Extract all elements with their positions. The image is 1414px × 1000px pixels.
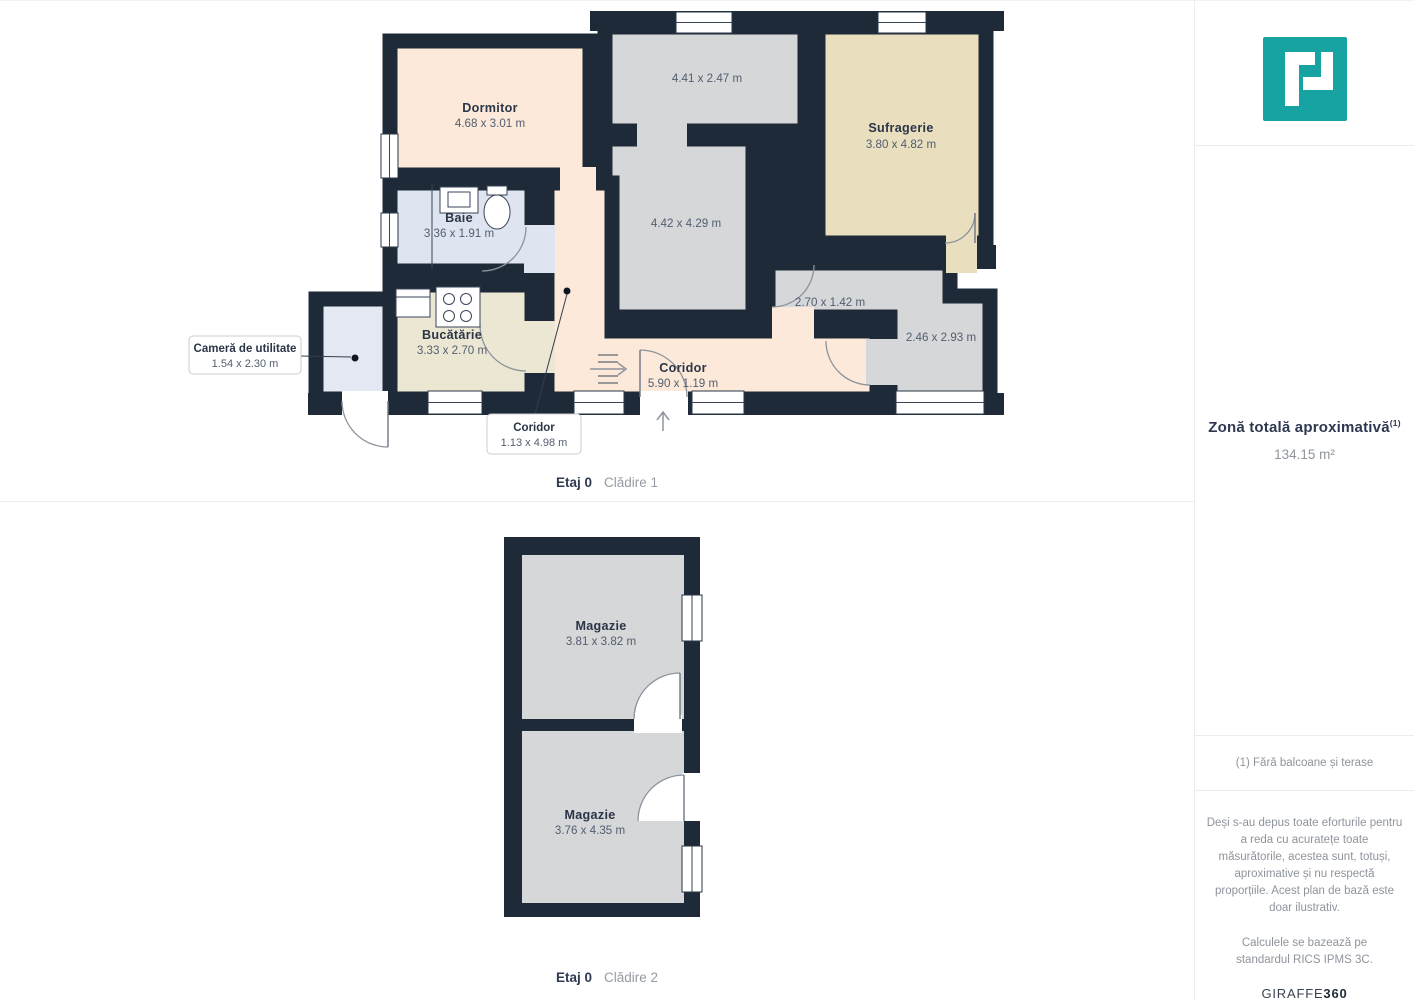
room-label: Magazie bbox=[564, 808, 615, 822]
opening-dormitor-coridor bbox=[560, 167, 596, 193]
room-sufragerie bbox=[818, 27, 986, 243]
room-dims: 4.68 x 3.01 m bbox=[455, 117, 525, 130]
callout-label: Coridor bbox=[513, 422, 555, 434]
plan1-building-caption: Clădire 1 bbox=[604, 475, 658, 490]
opening-entrance bbox=[640, 391, 688, 415]
info-sidebar: Zonă totală aproximativă(1) 134.15 m² (1… bbox=[1194, 1, 1414, 1000]
total-area-value: 134.15 m² bbox=[1274, 447, 1335, 462]
callout-label: Cameră de utilitate bbox=[194, 343, 297, 355]
room-dims: 3.36 x 1.91 m bbox=[424, 227, 494, 240]
footnote-text: (1) Fără balcoane și terase bbox=[1236, 757, 1373, 769]
room-label: Coridor bbox=[659, 361, 707, 375]
room-dims: 2.70 x 1.42 m bbox=[795, 296, 865, 309]
opening-bucatarie-door bbox=[524, 321, 555, 373]
opening-baie-door bbox=[524, 225, 555, 273]
callout-dims: 1.13 x 4.98 m bbox=[501, 437, 568, 449]
total-area-section: Zonă totală aproximativă(1) 134.15 m² bbox=[1195, 146, 1414, 736]
room-dims: 3.33 x 2.70 m bbox=[417, 344, 487, 357]
brand-suffix: 360 bbox=[1323, 986, 1347, 1000]
room-label: Bucătărie bbox=[422, 328, 482, 342]
window bbox=[381, 213, 398, 247]
standard-note: Calculele se bazează pe standardul RICS … bbox=[1215, 935, 1395, 969]
total-area-label: Zonă totală aproximativă bbox=[1208, 419, 1390, 436]
plan1-floor-caption: Etaj 0 bbox=[556, 475, 592, 490]
window bbox=[682, 595, 702, 641]
callout-dims: 1.54 x 2.30 m bbox=[212, 358, 279, 370]
opening-utility-door bbox=[342, 391, 388, 415]
legal-section: Deși s-au depus toate eforturile pentru … bbox=[1195, 791, 1414, 1000]
opening-sufragerie-door bbox=[946, 235, 977, 273]
plan2-floor-caption: Etaj 0 bbox=[556, 970, 592, 985]
window bbox=[878, 12, 926, 33]
footnote-section: (1) Fără balcoane și terase bbox=[1195, 736, 1414, 791]
floorplan-building-1: Dormitor 4.68 x 3.01 m 4.41 x 2.47 m Suf… bbox=[189, 11, 1004, 490]
plans-divider bbox=[0, 501, 1194, 502]
window bbox=[574, 391, 624, 414]
logo-section bbox=[1195, 1, 1414, 146]
room-dims: 3.81 x 3.82 m bbox=[566, 635, 636, 648]
total-area-title: Zonă totală aproximativă(1) bbox=[1208, 418, 1401, 436]
plan2-building-caption: Clădire 2 bbox=[604, 970, 658, 985]
room-label: Sufragerie bbox=[868, 121, 933, 135]
room-dims: 4.41 x 2.47 m bbox=[672, 72, 742, 85]
window bbox=[381, 134, 398, 178]
opening-between-gray-rooms bbox=[637, 122, 687, 149]
room-label: Baie bbox=[445, 211, 473, 225]
room-label: Magazie bbox=[575, 619, 626, 633]
room-dims: 2.46 x 2.93 m bbox=[906, 331, 976, 344]
floorplan-page: Dormitor 4.68 x 3.01 m 4.41 x 2.47 m Suf… bbox=[0, 0, 1414, 1000]
brand-name: GIRAFFE bbox=[1261, 986, 1323, 1000]
opening-coridor-right bbox=[866, 339, 900, 385]
brand-logo-icon bbox=[1263, 37, 1347, 121]
brand-wordmark: GIRAFFE360 bbox=[1261, 986, 1347, 1000]
room-dims: 3.80 x 4.82 m bbox=[866, 138, 936, 151]
window bbox=[428, 391, 482, 414]
window bbox=[896, 391, 984, 414]
disclaimer-text: Deși s-au depus toate eforturile pentru … bbox=[1207, 815, 1403, 917]
room-dims: 4.42 x 4.29 m bbox=[651, 217, 721, 230]
room-dims: 3.76 x 4.35 m bbox=[555, 824, 625, 837]
total-area-footnote-marker: (1) bbox=[1390, 418, 1401, 428]
opening-coridor-room bbox=[772, 307, 814, 340]
room-dims: 5.90 x 1.19 m bbox=[648, 377, 718, 390]
room-camera-utilitate bbox=[316, 299, 390, 399]
room-label: Dormitor bbox=[462, 101, 518, 115]
window bbox=[692, 391, 744, 414]
floorplan-building-2: Magazie 3.81 x 3.82 m Magazie 3.76 x 4.3… bbox=[504, 537, 702, 985]
window bbox=[682, 846, 702, 892]
window bbox=[676, 12, 732, 33]
